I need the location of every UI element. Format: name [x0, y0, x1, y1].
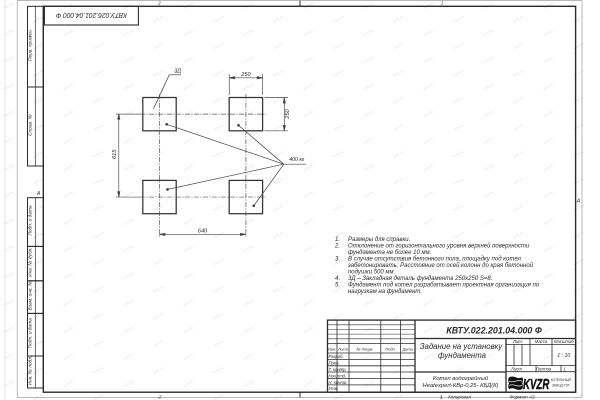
svg-text:Взам. инв. №: Взам. инв. №: [28, 281, 34, 311]
svg-text:Копировал: Копировал: [448, 394, 471, 399]
svg-text:Изм.: Изм.: [328, 347, 336, 352]
svg-text:Н. контр.: Н. контр.: [329, 380, 348, 385]
svg-text:2.: 2.: [334, 244, 340, 250]
svg-text:Подп. и дата: Подп. и дата: [28, 205, 34, 235]
svg-text:Масштаб: Масштаб: [554, 339, 574, 344]
svg-text:№ докум.: № докум.: [356, 347, 373, 352]
svg-text:Подп. и дата: Подп. и дата: [28, 318, 34, 348]
svg-text:1: 1: [440, 394, 443, 399]
svg-text:KVZR: KVZR: [523, 376, 549, 393]
svg-text:Т. контр.: Т. контр.: [329, 367, 347, 372]
svg-text:2: 2: [158, 395, 162, 400]
svg-text:3.: 3.: [335, 257, 340, 263]
svg-text:В случае отсутствия бетонного: В случае отсутствия бетонного пола, площ…: [348, 257, 521, 263]
svg-text:250: 250: [240, 72, 251, 78]
svg-text:Дата: Дата: [402, 347, 414, 352]
svg-text:Разраб.: Разраб.: [329, 354, 344, 359]
svg-text:3Д: 3Д: [174, 68, 181, 74]
svg-text:КВТУ.026.201.04.000 Ф: КВТУ.026.201.04.000 Ф: [55, 11, 126, 18]
svg-text:Пров.: Пров.: [329, 361, 340, 366]
svg-text:Масса: Масса: [535, 339, 548, 344]
svg-text:Heatexpert-КВр-0,25- КБД(К): Heatexpert-КВр-0,25- КБД(К): [423, 383, 499, 389]
svg-text:КОТЕЛЬНЫЙ: КОТЕЛЬНЫЙ: [551, 378, 572, 382]
svg-text:2: 2: [157, 1, 161, 6]
svg-text:Задание на установку: Задание на установку: [420, 342, 504, 351]
svg-text:забетонировать. Расстояние от: забетонировать. Расстояние от осей колон…: [347, 262, 534, 269]
svg-text:Инв. № дубл.: Инв. № дубл.: [28, 247, 34, 277]
svg-text:Размеры для справки.: Размеры для справки.: [348, 237, 410, 243]
svg-text:Лист: Лист: [337, 347, 349, 352]
svg-text:5.: 5.: [335, 283, 340, 289]
svg-text:Отклонение от горизонтального: Отклонение от горизонтального уровня вер…: [348, 243, 530, 250]
svg-text:640: 640: [198, 229, 208, 235]
svg-text:ЗАВОД РЭТ: ЗАВОД РЭТ: [552, 383, 571, 387]
svg-text:4.: 4.: [335, 276, 340, 282]
svg-text:3Д – Закладная деталь фундамен: 3Д – Закладная деталь фундамента 250х250…: [348, 276, 492, 282]
svg-text:615: 615: [112, 149, 118, 159]
svg-text:А: А: [576, 199, 581, 205]
svg-text:Лит.: Лит.: [512, 339, 523, 344]
svg-text:подушки 500 мм.: подушки 500 мм.: [348, 270, 395, 276]
svg-text:1: 1: [441, 1, 444, 6]
svg-text:1 : 10: 1 : 10: [557, 353, 570, 359]
svg-text:фундамента: фундамента: [438, 351, 487, 360]
svg-text:Фундамент под котел разрабатыв: Фундамент под котел разрабатывает проект…: [348, 283, 540, 289]
svg-text:Справ. №: Справ. №: [28, 114, 34, 136]
svg-text:400 кг: 400 кг: [289, 157, 305, 163]
svg-text:Утв.: Утв.: [329, 386, 339, 391]
svg-text:Инв. № подл.: Инв. № подл.: [28, 356, 34, 386]
svg-text:фундамента не более 10 мм.: фундамента не более 10 мм.: [348, 250, 431, 256]
svg-text:1: 1: [564, 367, 566, 372]
svg-text:А: А: [36, 191, 41, 197]
svg-text:Лист: Лист: [510, 367, 522, 372]
svg-text:Подп.: Подп.: [385, 347, 395, 352]
svg-text:Нач.отд.: Нач.отд.: [329, 373, 347, 378]
svg-text:1.: 1.: [335, 237, 340, 243]
svg-text:Котел водогрейный: Котел водогрейный: [433, 375, 489, 382]
svg-text:КВТУ.022.201.04.000 Ф: КВТУ.022.201.04.000 Ф: [446, 325, 542, 336]
svg-text:Листов: Листов: [535, 367, 552, 372]
svg-text:250: 250: [285, 108, 291, 119]
svg-text:Формат А3: Формат А3: [509, 394, 535, 399]
svg-text:Перв. примен.: Перв. примен.: [28, 29, 34, 61]
svg-text:нагрузкам на фундамент.: нагрузкам на фундамент.: [348, 289, 422, 295]
